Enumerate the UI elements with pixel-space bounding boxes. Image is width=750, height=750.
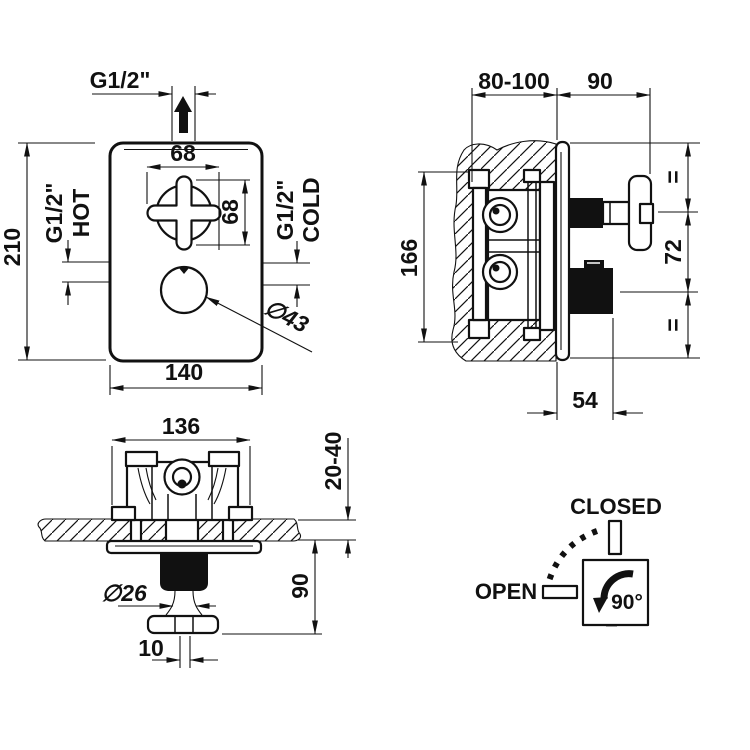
dim-outlet-thread: G1/2" [90,67,216,141]
escutcheon-plate-edge [107,541,261,553]
stem-width-value: 10 [138,635,164,661]
dim-protrusion: 90 [557,68,650,174]
hot-thread-label: G1/2" [41,183,67,244]
dim-plate-height: 210 [0,143,106,360]
front-view: G1/2" 68 68 G1/2" HOT [0,67,324,395]
thermostat-knob-side [569,260,613,314]
closed-label: CLOSED [570,494,662,519]
outlet-thread-label: G1/2" [90,67,151,93]
technical-drawing-sheet: G1/2" 68 68 G1/2" HOT [0,0,750,750]
dim-stem-width: 10 [138,635,218,668]
wall-thickness-value: 20-40 [320,432,346,491]
cold-thread-label: G1/2" [272,180,298,241]
knob-offset-value: 54 [572,387,598,413]
protrusion-value: 90 [587,68,613,94]
handle-position-closed [609,521,621,554]
dim-plate-width: 140 [110,359,262,395]
open-label: OPEN [475,579,537,604]
installation-view: 136 20-40 90 ∅26 10 [38,413,356,668]
rotation-diagram: CLOSED OPEN 90° [475,494,662,627]
handle-spacing-value: 72 [660,239,686,265]
cross-handle-side [569,176,653,250]
handle-width-value: 68 [170,140,196,166]
handle-protrusion-value: 90 [287,573,313,599]
rough-in-box [112,452,252,520]
plate-width-value: 140 [165,359,203,385]
drawing-svg: G1/2" 68 68 G1/2" HOT [0,0,750,750]
side-view: 80-100 90 166 = 72 [396,68,700,420]
plate-height-value: 210 [0,228,25,266]
dim-cold-inlet: G1/2" COLD [262,177,324,307]
dim-wall-thickness-range: 20-40 [298,432,356,558]
equal-spacing-bottom: = [660,318,686,331]
equal-spacing-top: = [660,170,686,183]
body-height-value: 166 [396,239,422,277]
wall-depth-range-value: 80-100 [478,68,550,94]
knob-diameter-value: ∅43 [260,294,313,338]
cold-label: COLD [298,177,324,242]
handle-position-open [543,586,577,598]
hot-label: HOT [68,189,94,238]
handle-height-value: 68 [217,199,243,225]
dim-hot-inlet: G1/2" HOT [41,183,110,305]
concealed-valve-body-side [469,170,554,340]
rotation-angle-value: 90° [611,591,643,614]
stem-diameter-value: ∅26 [101,580,147,606]
body-width-value: 136 [162,413,200,439]
handle-stem-edge [148,553,218,633]
outlet-direction-arrow [174,96,192,133]
escutcheon-plate-side [556,142,569,360]
